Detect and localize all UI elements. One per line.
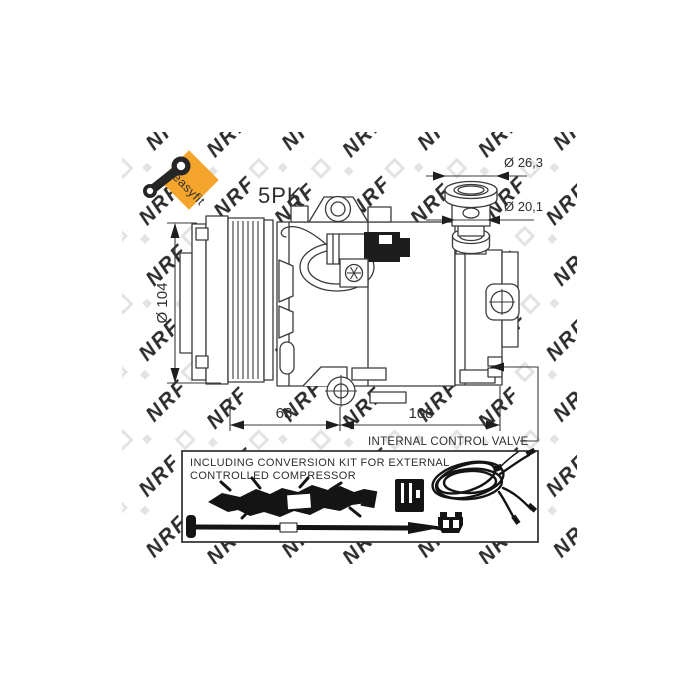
kit-relay — [395, 479, 424, 512]
length-front-label: 68 — [276, 405, 293, 422]
pulley — [180, 216, 273, 384]
belt-type-label: 5PK — [258, 183, 303, 208]
compressor-body — [277, 197, 455, 408]
length-rear-label: 108 — [408, 405, 433, 422]
pulley-diameter-label: Ø 104 — [154, 283, 171, 324]
conversion-kit-box: INCLUDING CONVERSION KIT FOR EXTERNAL CO… — [182, 448, 538, 542]
product-diagram-page: NRF NRF easyfit 5PK — [0, 0, 700, 700]
kit-text-line1: INCLUDING CONVERSION KIT FOR EXTERNAL — [190, 457, 450, 469]
technical-drawing-canvas: NRF NRF easyfit 5PK — [0, 0, 700, 700]
internal-control-valve-label: INTERNAL CONTROL VALVE — [368, 436, 529, 448]
kit-text-line2: CONTROLLED COMPRESSOR — [190, 470, 356, 482]
suction-port — [445, 182, 497, 255]
port-neck-diameter-label: Ø 20,1 — [504, 199, 543, 214]
port-flange-diameter-label: Ø 26,3 — [504, 155, 543, 170]
torx-screw — [340, 259, 368, 287]
